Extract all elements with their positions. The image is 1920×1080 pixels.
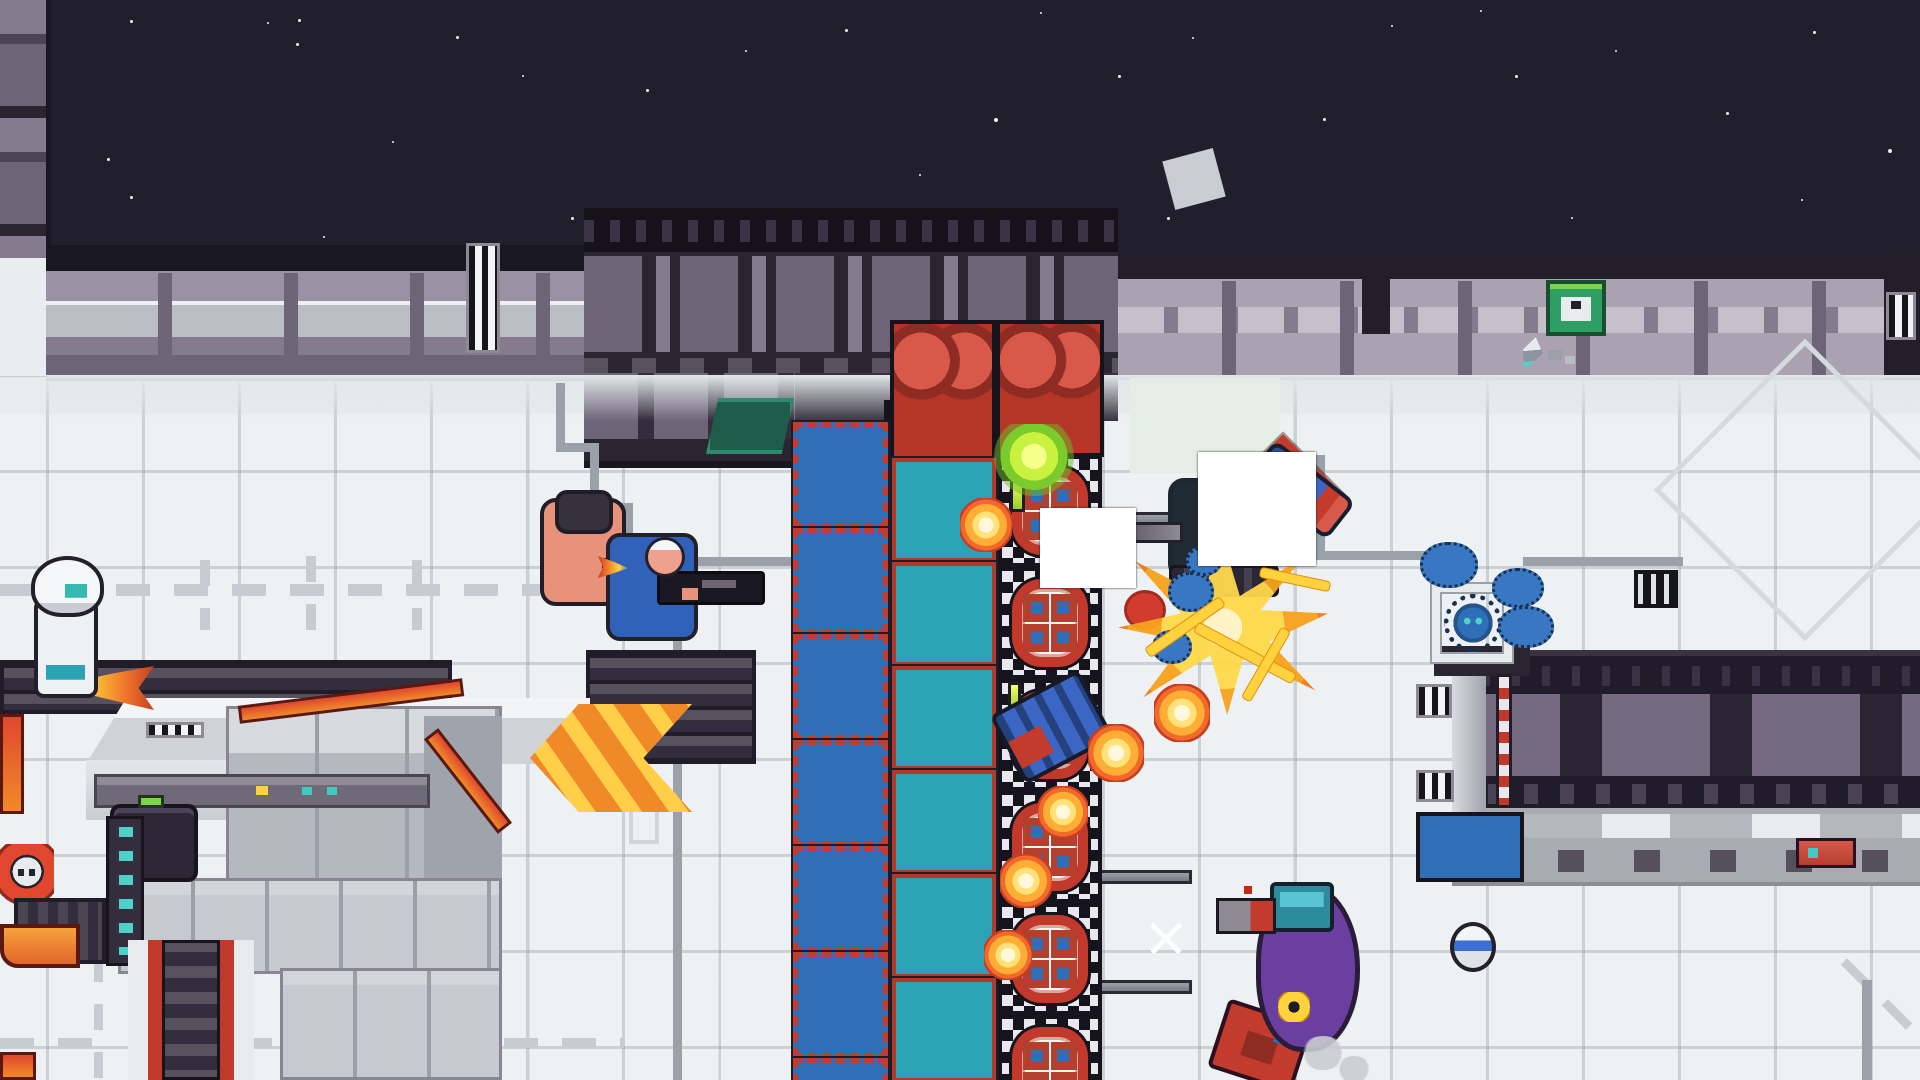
lane-dash-h2	[238, 1038, 282, 1048]
right-edge-door	[1886, 292, 1916, 340]
repair-robot[interactable]	[34, 598, 98, 698]
dock-dash-col3	[412, 560, 422, 630]
fireball-3	[1154, 684, 1210, 742]
corner-diag-dash	[1841, 958, 1920, 1070]
crate-blue-x-6[interactable]	[793, 952, 888, 1058]
satellite	[1162, 148, 1225, 210]
ship-wing-vents	[146, 722, 204, 738]
corridor-vent-1	[1416, 684, 1452, 718]
striped-pole	[1496, 674, 1512, 808]
wall-vent-dark	[1634, 570, 1678, 608]
ship-cockpit-light	[138, 795, 164, 808]
dock-dash-col2	[306, 556, 316, 630]
lane-dash-h1	[0, 1038, 108, 1048]
fireball-6	[984, 930, 1032, 980]
floor-line-v1	[556, 383, 565, 445]
slime-gun	[1216, 898, 1276, 934]
floor-patch-left	[0, 258, 46, 376]
crate-blue-x-1[interactable]	[793, 422, 888, 528]
fuzz-debris-1	[1420, 542, 1478, 588]
wall-column-left	[0, 0, 51, 262]
ship-cargo-red-2	[0, 1052, 36, 1080]
smoke-puff-2	[1336, 1056, 1372, 1080]
floor-hatch-green	[706, 398, 794, 454]
fireball-5	[1000, 854, 1052, 908]
crate-blue-x-5[interactable]	[793, 846, 888, 952]
ship-cargo-red-1	[0, 714, 24, 814]
dock-dash-col1	[200, 560, 210, 630]
conveyor-head-1	[890, 320, 996, 460]
fuzz-debris-2	[1492, 568, 1544, 608]
corridor-device-red	[1796, 838, 1856, 868]
spider-bot[interactable]	[1444, 594, 1502, 652]
floor-line-v6	[1862, 980, 1872, 1080]
blood-dot	[1244, 886, 1252, 894]
crate-blue-x-4[interactable]	[793, 740, 888, 846]
crate-blue-x-3[interactable]	[793, 634, 888, 740]
crate-water-6[interactable]	[892, 978, 996, 1080]
ball-bot[interactable]	[1450, 922, 1496, 972]
ship-escape-pod	[0, 844, 54, 904]
explosion-large	[1118, 540, 1328, 715]
ship-landing-skid	[0, 924, 80, 968]
green-blast	[992, 424, 1076, 496]
gray-debris-2	[1565, 356, 1575, 364]
slime-eye	[1278, 992, 1310, 1022]
floor-line-s1	[556, 443, 599, 452]
ship-boarding-ramp	[148, 940, 234, 1080]
crate-water-2[interactable]	[892, 562, 996, 666]
wall-door-dark	[1362, 276, 1390, 334]
corridor-vent-2	[1416, 770, 1454, 802]
fuzz-debris-3	[1498, 606, 1554, 648]
green-console[interactable]	[1546, 280, 1606, 336]
drone-brackets	[1040, 508, 1136, 588]
wall-pipe	[466, 243, 500, 353]
crate-water-4[interactable]	[892, 770, 996, 874]
ship-lower-deck-2	[280, 968, 502, 1080]
crate-water-3[interactable]	[892, 666, 996, 770]
lane-dash-h3	[504, 1038, 624, 1048]
red-machine	[1416, 812, 1524, 882]
slime-turret[interactable]	[1270, 882, 1334, 932]
mech-target-brackets	[1198, 452, 1316, 566]
crate-blue-x-2[interactable]	[793, 528, 888, 634]
fireball-4	[1038, 786, 1088, 838]
soldier-rifle[interactable]	[606, 533, 698, 641]
crate-water-5[interactable]	[892, 874, 996, 978]
sprite-layer	[0, 0, 1920, 1080]
game-viewport[interactable]	[0, 0, 1920, 1080]
fireball-1	[960, 498, 1012, 552]
lane-dash-v1	[94, 956, 103, 1080]
crate-blue-x-7[interactable]	[793, 1058, 888, 1080]
floor-line-h3	[1523, 557, 1683, 566]
ship-light-tower	[106, 816, 144, 966]
gray-debris-1	[1548, 350, 1562, 360]
station-wall-left	[46, 245, 584, 381]
fireball-2	[1088, 724, 1144, 782]
engine-block-6[interactable]	[998, 1015, 1102, 1080]
floor-x-mark-1	[1138, 910, 1195, 967]
